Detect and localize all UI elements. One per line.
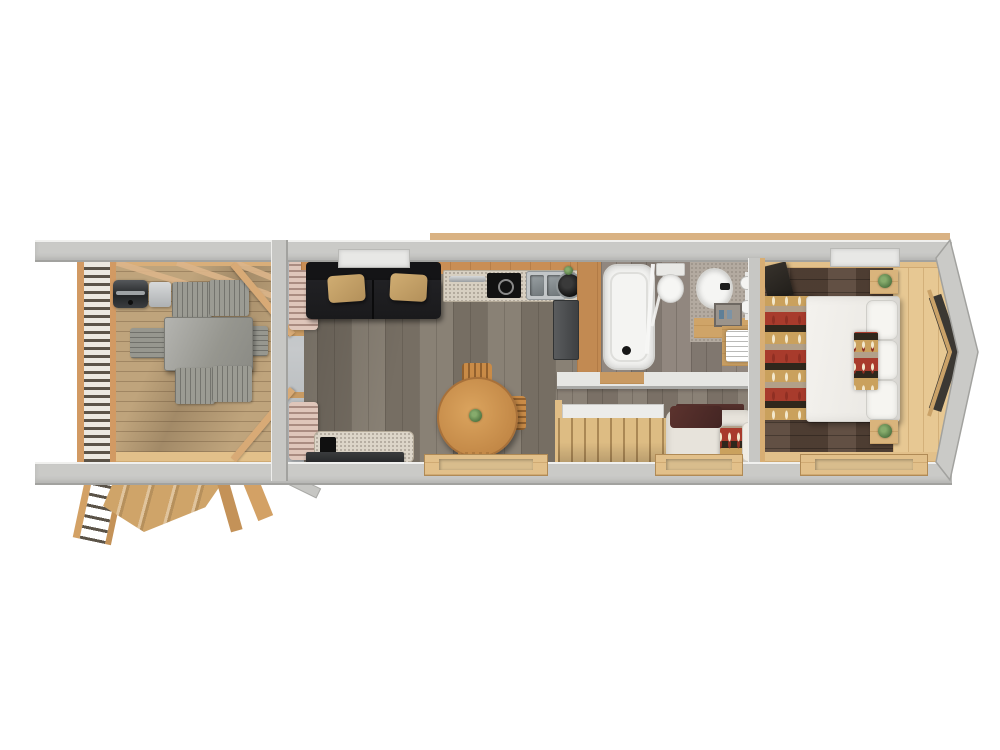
deck-railing-outer-rail bbox=[77, 256, 84, 464]
grill-side-table bbox=[149, 282, 171, 307]
bedroom-divider-trim bbox=[760, 258, 765, 462]
induction-hob bbox=[487, 273, 521, 298]
bath-shelf bbox=[714, 303, 742, 327]
toilet bbox=[654, 263, 685, 303]
herb-plant bbox=[564, 266, 573, 275]
loft-staircase bbox=[558, 418, 668, 462]
armchair-throw bbox=[670, 406, 722, 428]
deck-railing-rungs bbox=[84, 258, 110, 462]
counter-rail bbox=[449, 276, 486, 282]
table-plant bbox=[469, 409, 482, 422]
gable-end-wall bbox=[271, 240, 288, 481]
towel-stack bbox=[726, 330, 750, 362]
fridge bbox=[553, 300, 579, 360]
hall-divider-wood bbox=[600, 372, 644, 384]
outdoor-chair bbox=[175, 368, 215, 404]
deck-edge-trim bbox=[108, 452, 283, 462]
window-recess-inner bbox=[666, 459, 732, 470]
outer-wall-top bbox=[35, 240, 952, 262]
outdoor-bench bbox=[130, 328, 166, 358]
kilim-runner bbox=[854, 332, 878, 390]
herb-plant-leaves bbox=[564, 266, 573, 275]
window-sill bbox=[338, 249, 410, 268]
outdoor-chair bbox=[209, 280, 249, 316]
window-recess bbox=[424, 454, 548, 476]
outdoor-chair bbox=[172, 282, 212, 318]
sink-basin bbox=[530, 275, 544, 296]
hall-divider-wall bbox=[557, 372, 752, 389]
sofa-seat-split bbox=[372, 280, 374, 319]
window-recess bbox=[655, 454, 743, 476]
hob-burner-ring bbox=[498, 279, 514, 295]
sofa-cushion bbox=[389, 273, 427, 302]
window-recess-inner bbox=[439, 459, 533, 470]
pointed-end-wall bbox=[936, 240, 978, 480]
bathtub-faucet bbox=[622, 346, 631, 355]
toilet-bowl bbox=[657, 274, 684, 303]
toiletry bbox=[719, 310, 724, 319]
bbq-grill bbox=[113, 279, 171, 310]
outdoor-chair bbox=[212, 366, 252, 402]
toiletry bbox=[727, 310, 732, 319]
sofa bbox=[306, 262, 441, 319]
outdoor-dining-table bbox=[164, 317, 253, 371]
grill-knob bbox=[128, 300, 133, 305]
sofa-cushion bbox=[327, 274, 366, 304]
grill-lid-handle bbox=[116, 291, 145, 295]
basin-faucet bbox=[720, 283, 730, 290]
pointed-end bbox=[880, 230, 1000, 490]
kitchen-side-wall bbox=[577, 258, 601, 380]
floorplan-render bbox=[0, 0, 1000, 750]
